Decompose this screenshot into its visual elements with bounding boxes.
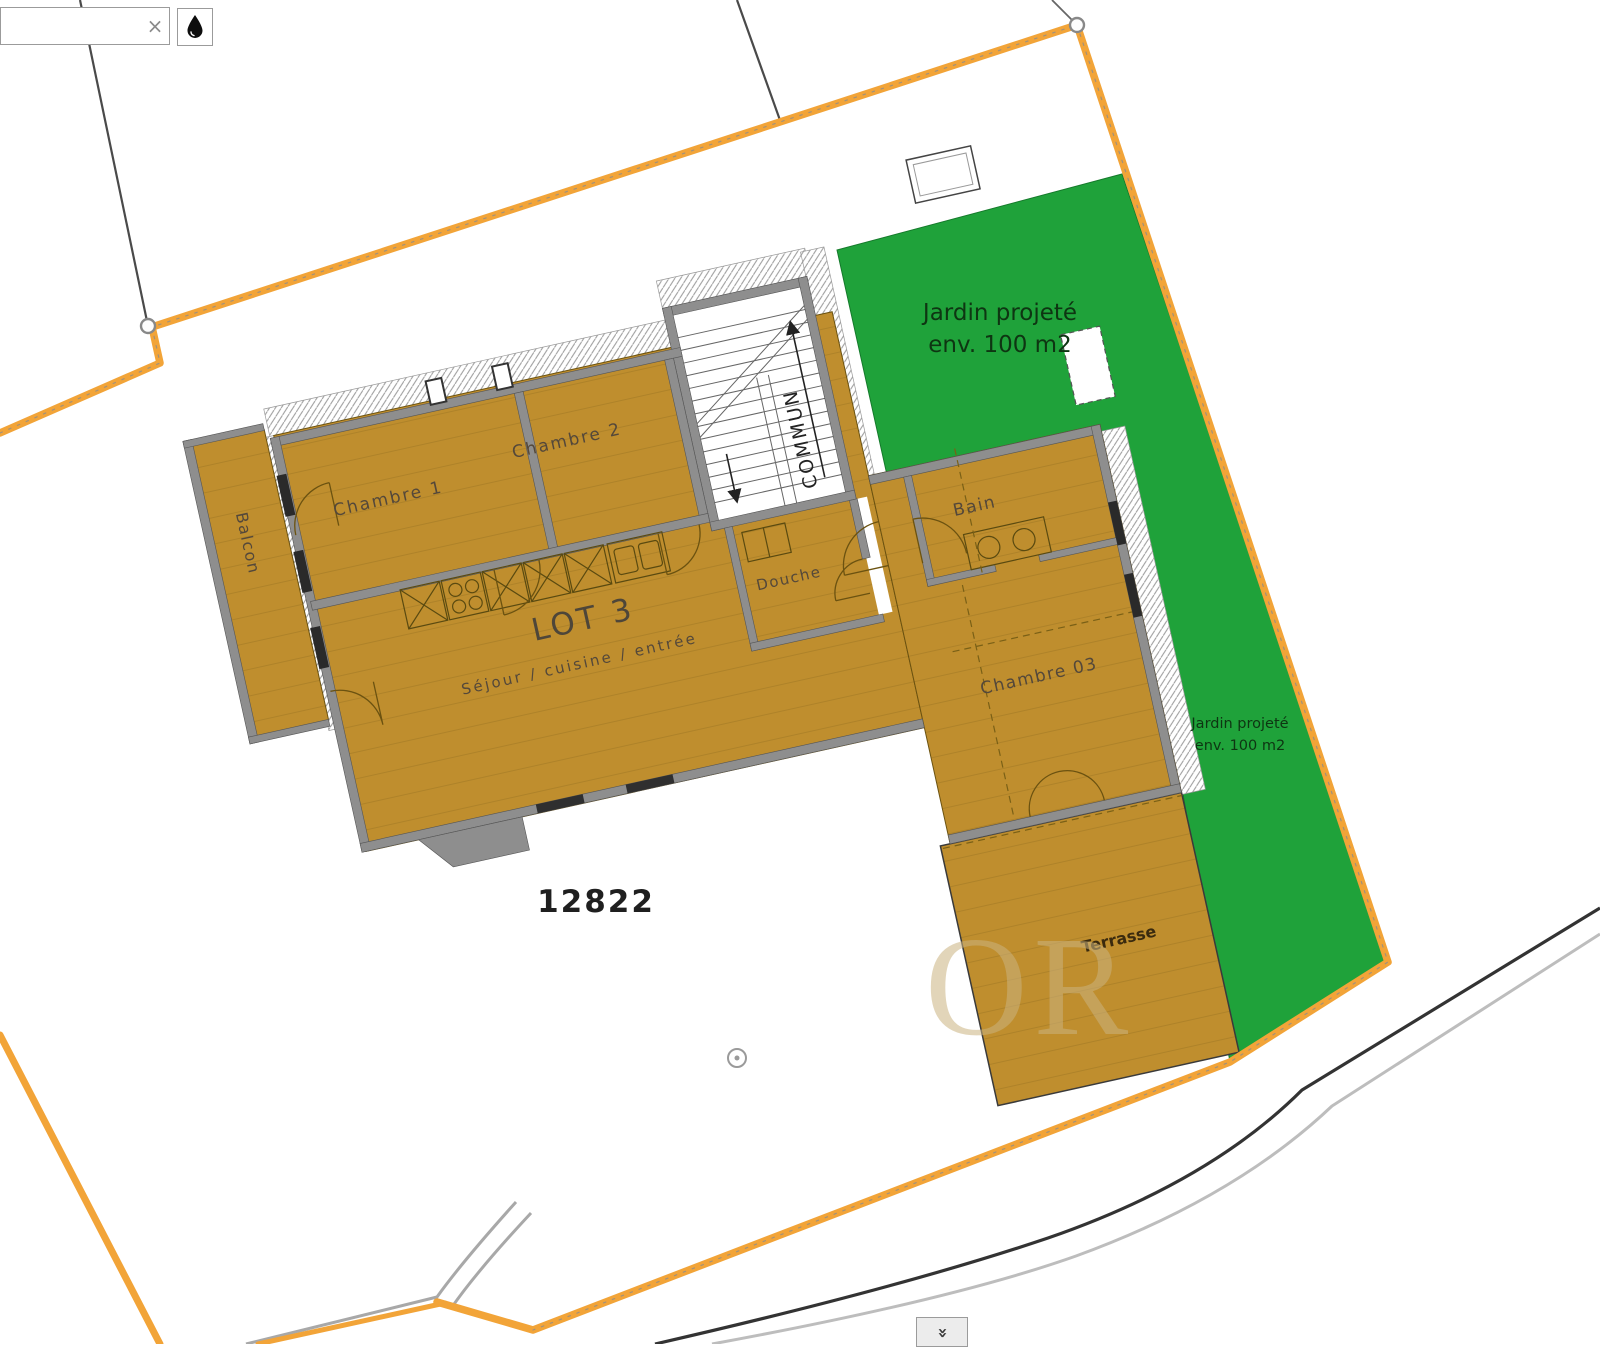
search-box[interactable]: ×: [0, 7, 170, 45]
collapse-button[interactable]: »: [916, 1317, 968, 1347]
garden-label-large-line1: Jardin projeté: [921, 300, 1077, 326]
parcel-boundary-road: [258, 1303, 445, 1344]
garden-label-large-line2: env. 100 m2: [928, 332, 1071, 358]
annex-box: [906, 146, 980, 203]
survey-node-north: [1070, 18, 1084, 32]
road-lines: [246, 908, 1600, 1344]
floor-plan-canvas: Chambre 1 Chambre 2 LOT 3 Séjour / cuisi…: [0, 0, 1600, 1344]
parcel-number: 12822: [537, 884, 655, 920]
search-input[interactable]: [1, 8, 141, 44]
parcel-boundary-left: [0, 1035, 160, 1344]
clear-icon[interactable]: ×: [141, 7, 169, 45]
garden-label-small-line1: Jardin projeté: [1190, 716, 1288, 732]
double-chevron-down-icon: »: [932, 1328, 952, 1337]
droplet-icon: [185, 14, 205, 40]
survey-node-west: [141, 319, 155, 333]
road-curve-outer: [246, 1202, 516, 1344]
garden-label-small-line2: env. 100 m2: [1195, 738, 1285, 754]
droplet-button[interactable]: [177, 8, 213, 46]
benchmark-icon: [728, 1049, 746, 1067]
